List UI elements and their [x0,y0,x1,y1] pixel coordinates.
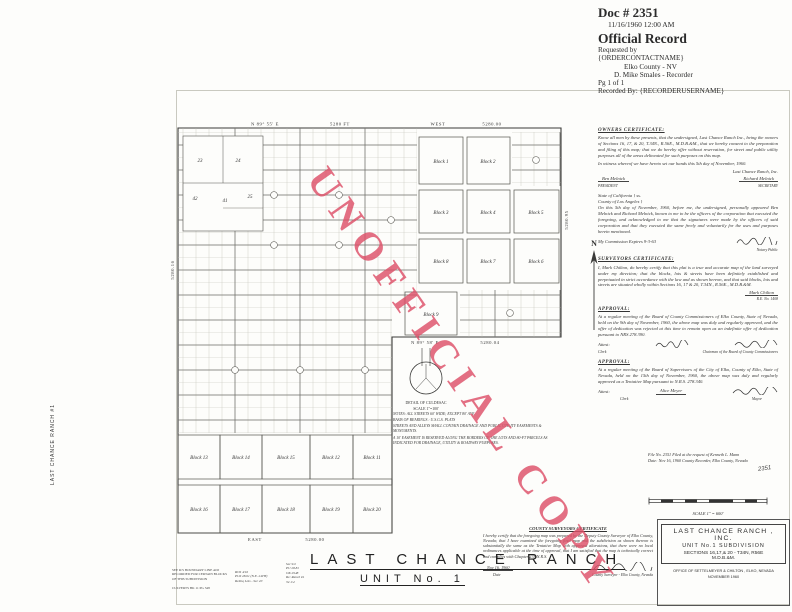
surveyor-registration: R.E. No. 1408 [757,297,778,301]
block-14-label: Block 14 [232,456,250,461]
surveyors-certificate: SURVEYORS CERTIFICATE: I, Mark Chilton, … [598,257,778,302]
mayor-label: Mayor [752,397,762,402]
doc-number: Doc # 2351 [598,6,790,21]
recorder-name: D. Mike Smales - Recorder [614,71,790,79]
margin-stamp-line: OF THIS SUBDIVISION [172,577,230,581]
county-approval: APPROVAL: At a regular meeting of the Bo… [598,307,778,355]
parcel-24: 24 [236,159,242,164]
block-19-label: Block 19 [322,508,340,513]
attest-label: Attest: [598,342,610,348]
city-approval-body: At a regular meeting of the Board of Sup… [598,367,778,385]
president-signature: Ben Melnick [598,176,629,182]
margin-handnote-1: ROS 4/16 PU# 28.61 (N.E. 24TH) Relinq Lo… [235,570,283,583]
mayor-signature [732,387,778,395]
scale-bar: SCALE 1" = 600' [648,492,768,516]
block-18-label: Block 18 [277,508,295,513]
title-block-company: LAST CHANCE RANCH , INC. [663,528,784,542]
certificates-column: OWNERS CERTIFICATE: Know all men by thes… [598,128,778,407]
north-arrow: N [591,239,598,330]
record-datetime: 11/16/1960 12:00 AM [608,21,790,30]
distance-bottom: 5280.00 [305,537,324,542]
owners-certificate: OWNERS CERTIFICATE: Know all men by thes… [598,128,778,188]
distance-mid: 5280.04 [480,340,499,345]
filing-note: File No. 2351 Filed at the request of Ke… [648,452,780,465]
block-17-label: Block 17 [232,508,250,513]
title-block-inner: LAST CHANCE RANCH , INC. UNIT No.1 SUBDI… [661,524,786,564]
secretary-label: SECRETARY [758,184,778,189]
chairman-signature [734,340,778,348]
president-label: PRESIDENT [598,184,618,189]
block-15-label: Block 15 [277,456,295,461]
parcel-41: 41 [223,199,228,204]
surveyors-certificate-body: I, Mark Chilton, do hereby certify that … [598,265,778,289]
notary-acknowledgment: State of California } ss. County of Los … [598,193,778,252]
surveyors-certificate-heading: SURVEYORS CERTIFICATE: [598,257,778,263]
owners-certificate-body: Know all men by these presents, that the… [598,135,778,159]
parcel-23: 23 [198,159,204,164]
chairman-label: Chairman of the Board of County Commissi… [703,350,778,355]
detail-scale: SCALE 1"=100' [413,407,439,411]
requested-by-value: {ORDERCONTACTNAME} [598,54,790,62]
clerk-label: Clerk [598,350,606,355]
bearing-top-left: N 89° 55' E [251,122,279,127]
open-parcels: 23 24 25 41 42 [183,136,263,231]
filing-line-2: Date: Nov 16, 1960 County Recorder, Elko… [648,458,780,464]
bearing-bottom: EAST [248,537,262,542]
county-approval-heading: APPROVAL: [598,307,778,313]
distance-right: 5280.95 [564,210,569,229]
scale-label: SCALE 1" = 600' [648,511,768,516]
sheet-subtitle: UNIT No. 1 [360,573,465,586]
scale-bar-graphic [648,497,768,505]
north-label: N [591,239,597,248]
block-2-label: Block 2 [480,160,496,165]
margin-stamp: SEE R/S BOUNDARY LINE ADJ RECORDED FOR C… [172,568,230,591]
county-approval-body: At a regular meeting of the Board of Cou… [598,314,778,338]
title-block-meridian: M.D.B.&M. [663,556,784,561]
title-block: LAST CHANCE RANCH , INC. UNIT No.1 SUBDI… [657,519,790,606]
block-4-label: Block 4 [480,211,496,216]
scanned-plat-document: { "recorder_header": { "doc_number": "Do… [0,0,792,612]
notary-signature [736,237,778,245]
city-approval: APPROVAL: At a regular meeting of the Bo… [598,360,778,402]
distance-top-left: 5280 FT [330,122,350,127]
block-20-label: Block 20 [363,508,381,513]
owners-certificate-heading: OWNERS CERTIFICATE: [598,128,778,134]
title-block-office: OFFICE OF SETTELMEYER & CHILTON , ELKO, … [658,569,789,573]
clerk-signature [655,340,689,348]
edge-tab-label: LAST CHANCE RANCH #1 [50,404,57,485]
record-type: Official Record [598,31,790,47]
title-block-unit: UNIT No.1 SUBDIVISION [663,543,784,549]
block-1-label: Block 1 [433,160,448,165]
block-6-label: Block 6 [528,260,544,265]
distance-left: 5280.16 [170,260,175,279]
notary-body: On this 5th day of November, 1960, befor… [598,205,778,234]
title-block-date: NOVEMBER 1960 [658,575,789,579]
handnote-line: 34 1/4 [286,580,316,584]
parcel-25: 25 [248,195,254,200]
city-approval-heading: APPROVAL: [598,360,778,366]
bearing-top-right: WEST [431,122,446,127]
block-12-label: Block 12 [322,456,340,461]
commission-expires: My Commission Expires 9-3-63 [598,239,656,245]
owners-certificate-witness: In witness whereof we have hereto set ou… [598,161,778,167]
block-13-label: Block 13 [190,456,208,461]
secretary-signature: Richard Melnick [739,176,778,182]
notary-label: Notary Public [757,248,778,252]
sw-blocks [178,435,392,533]
distance-top-right: 5280.00 [482,122,501,127]
block-3-label: Block 3 [433,211,449,216]
requested-by-label: Requested by [598,46,790,54]
attest-label: Attest: [598,389,610,395]
margin-handnote-2: Sec 9/2 PU 28.81 OK 2948 Re: Ranch #1 34… [286,562,316,584]
block-5-label: Block 5 [528,211,544,216]
parcel-42: 42 [193,197,199,202]
block-11-label: Block 11 [363,456,380,461]
recorder-header: Doc # 2351 11/16/1960 12:00 AM Official … [598,6,790,96]
block-16-label: Block 16 [190,508,208,513]
date-label: Date [493,573,500,578]
city-clerk-label: Clerk [620,397,628,402]
block-8-label: Block 8 [433,260,449,265]
recorded-by: Recorded By: {RECORDERUSERNAME} [598,87,790,95]
block-7-label: Block 7 [480,260,496,265]
city-clerk-signature: Alice Meyer [656,388,686,395]
detail-title: DETAIL OF CULDESAC [405,401,446,405]
company-signature: Last Chance Ranch, Inc. [598,169,778,175]
margin-stamp-line: CULVERTS BK 11 PG 348 [172,586,230,590]
county-name: Elko County - NV [624,63,790,71]
handnote-line: Relinq Lots - Sec 20 [235,579,283,583]
page-count: Pg 1 of 1 [598,79,790,87]
